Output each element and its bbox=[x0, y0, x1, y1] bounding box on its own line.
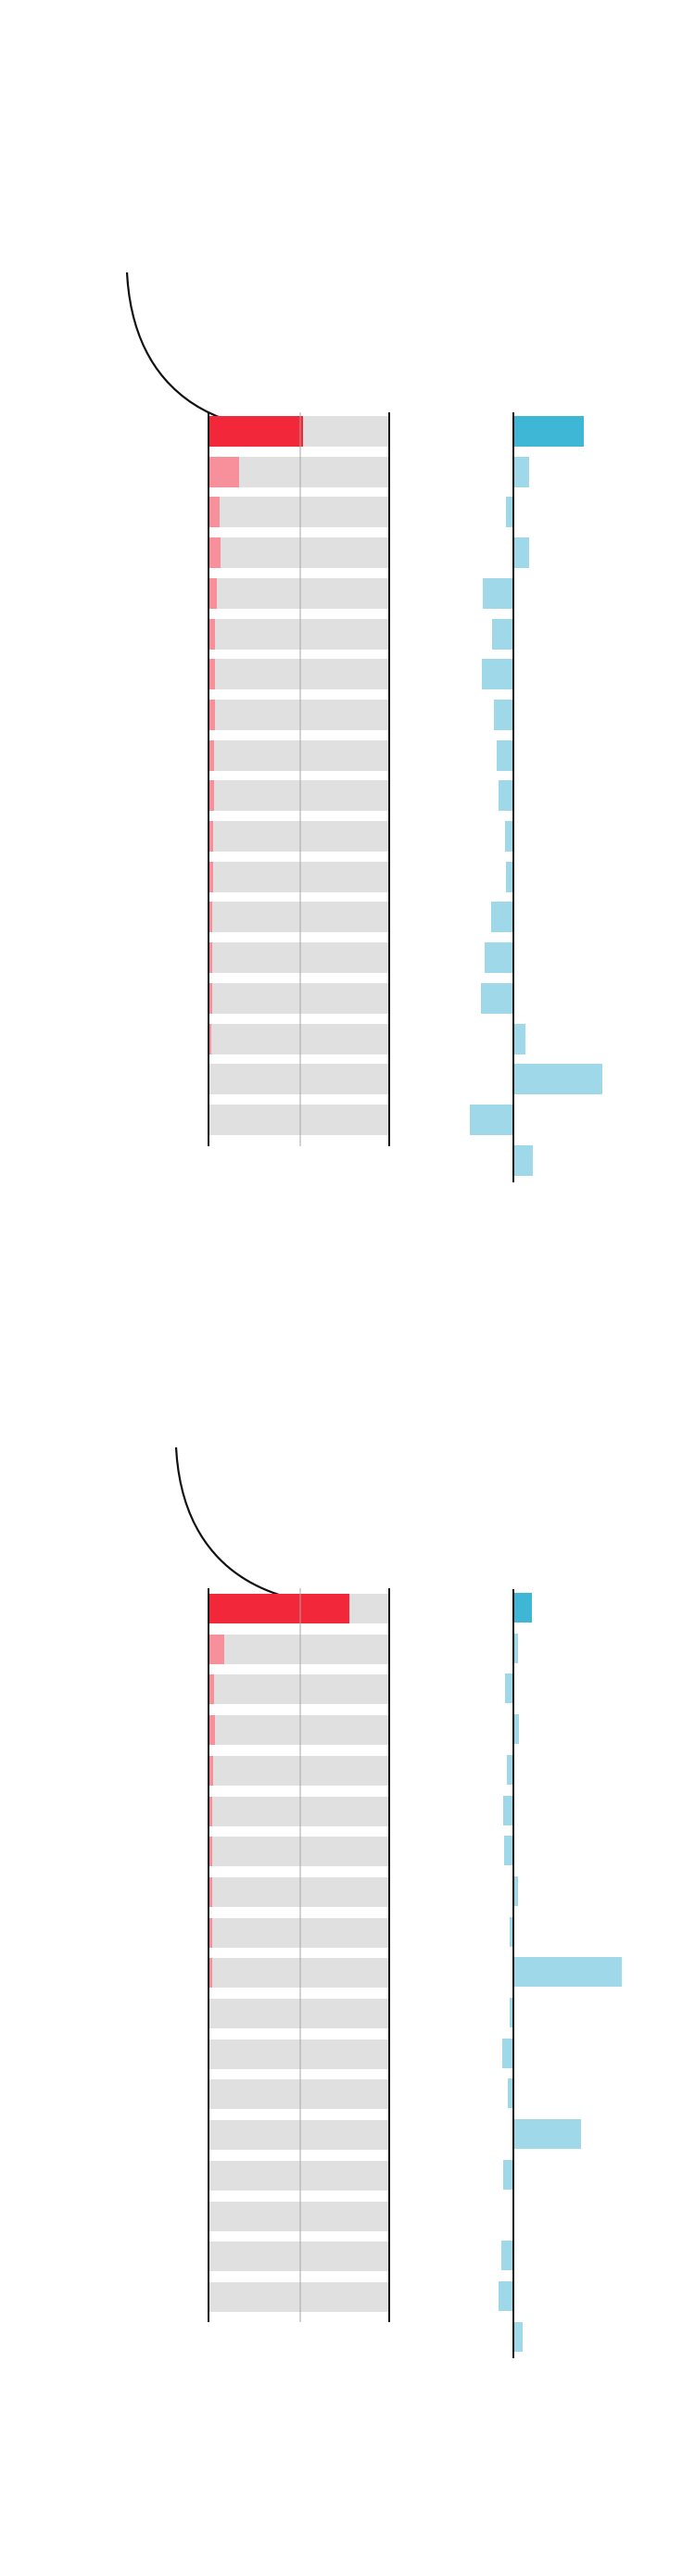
category-bar bbox=[209, 1635, 224, 1664]
category-bar bbox=[209, 862, 213, 892]
diverging-bar-positive bbox=[514, 1876, 518, 1906]
midpoint-gridline bbox=[299, 412, 301, 1146]
category-bar bbox=[209, 1877, 212, 1907]
category-bar bbox=[209, 1958, 212, 1988]
diverging-bar-positive bbox=[514, 1024, 525, 1054]
diverging-bar-negative bbox=[504, 1836, 512, 1865]
diverging-bar-negative bbox=[505, 821, 512, 852]
category-bar bbox=[209, 1756, 213, 1786]
category-bar bbox=[209, 578, 217, 609]
category-bar bbox=[209, 740, 214, 771]
diverging-bar-positive bbox=[514, 1145, 533, 1176]
diverging-bar-negative bbox=[491, 902, 512, 932]
diverging-bar-negative bbox=[501, 2241, 512, 2270]
diverging-bar-positive bbox=[514, 2119, 581, 2149]
diverging-bar-negative bbox=[503, 2160, 512, 2190]
annotation-arrow-panel-1 bbox=[127, 272, 298, 438]
diverging-bar-positive bbox=[514, 1714, 519, 1744]
category-bar bbox=[209, 942, 212, 973]
y-axis-right bbox=[388, 412, 390, 1146]
diverging-bar-positive bbox=[514, 1064, 602, 1094]
zero-axis bbox=[512, 1589, 514, 2358]
category-bar bbox=[209, 497, 220, 527]
diverging-bar-negative bbox=[492, 619, 512, 650]
y-axis-left bbox=[208, 412, 209, 1146]
y-axis-right bbox=[388, 1588, 390, 2322]
arrow-curve bbox=[176, 1447, 335, 1605]
category-bar bbox=[209, 457, 239, 487]
highlighted-bar bbox=[209, 416, 303, 447]
diverging-bar-negative bbox=[506, 497, 512, 527]
diverging-bar-negative bbox=[503, 1796, 512, 1825]
diverging-bar-negative bbox=[502, 2039, 512, 2068]
midpoint-gridline bbox=[299, 1588, 301, 2322]
diverging-bar-positive bbox=[514, 1593, 532, 1623]
category-bar bbox=[209, 1918, 212, 1948]
category-bar bbox=[209, 780, 214, 811]
category-bar bbox=[209, 902, 212, 932]
category-bar bbox=[209, 1024, 211, 1054]
annotation-arrow-panel-2 bbox=[176, 1447, 349, 1612]
diverging-bar-positive bbox=[514, 1957, 622, 1987]
category-bar bbox=[209, 619, 215, 650]
category-bar bbox=[209, 1797, 212, 1826]
diverging-bar-negative bbox=[494, 700, 512, 730]
diverging-bar-negative bbox=[499, 780, 512, 811]
category-bar bbox=[209, 537, 221, 568]
category-bar bbox=[209, 821, 213, 852]
y-axis-left bbox=[208, 1588, 209, 2322]
chart-canvas bbox=[0, 0, 695, 2576]
category-bar bbox=[209, 983, 212, 1014]
diverging-bar-positive bbox=[514, 1634, 518, 1663]
diverging-bar-positive bbox=[514, 2322, 523, 2352]
diverging-bar-negative bbox=[470, 1105, 512, 1135]
diverging-bar-negative bbox=[499, 2281, 512, 2311]
diverging-bar-positive bbox=[514, 537, 529, 568]
category-bar bbox=[209, 1674, 214, 1704]
diverging-bar-negative bbox=[482, 659, 512, 689]
zero-axis bbox=[512, 412, 514, 1182]
diverging-bar-negative bbox=[497, 740, 512, 771]
diverging-bar-negative bbox=[505, 1673, 512, 1703]
diverging-bar-negative bbox=[485, 942, 512, 973]
diverging-bar-negative bbox=[506, 862, 512, 892]
category-bar bbox=[209, 700, 215, 730]
diverging-bar-positive bbox=[514, 416, 584, 447]
category-bar bbox=[209, 1837, 212, 1866]
diverging-bar-negative bbox=[481, 983, 512, 1014]
diverging-bar-negative bbox=[483, 578, 512, 609]
category-bar bbox=[209, 659, 215, 689]
arrow-curve bbox=[127, 272, 284, 431]
diverging-bar-positive bbox=[514, 457, 529, 487]
highlighted-bar bbox=[209, 1594, 349, 1623]
category-bar bbox=[209, 1715, 215, 1745]
